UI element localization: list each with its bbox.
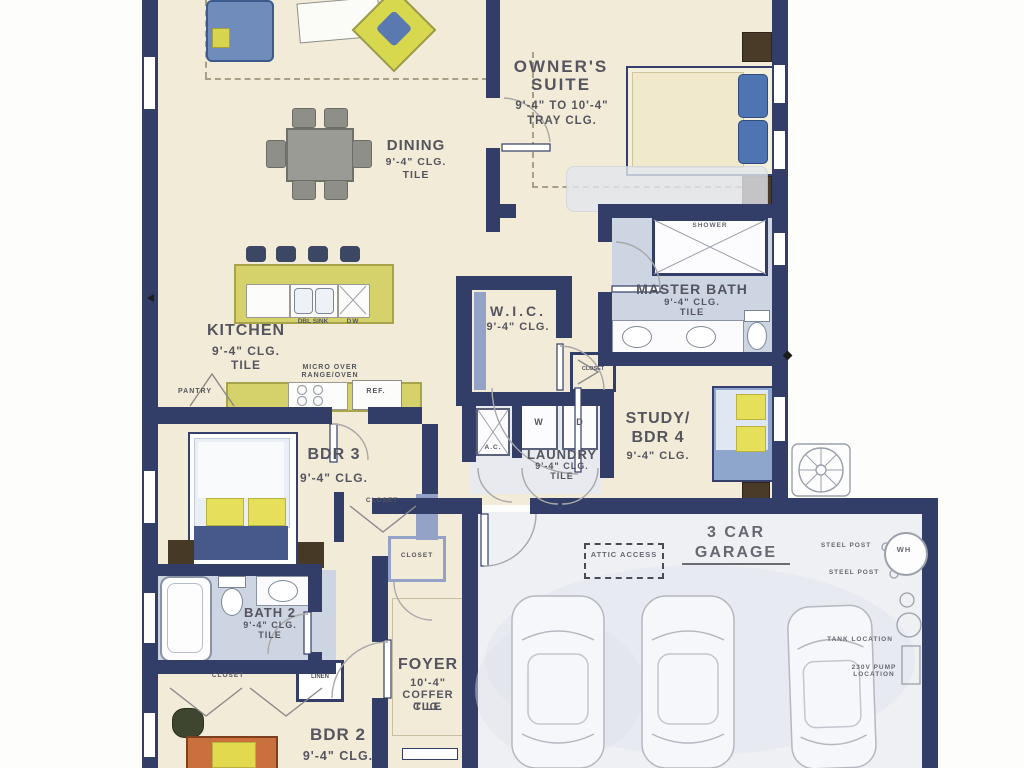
- wall: [922, 498, 938, 768]
- wall: [158, 407, 332, 424]
- wall: [598, 292, 612, 352]
- bdr3-ceiling: 9'-4" CLG.: [290, 472, 378, 485]
- bdr3-bedcover: [194, 526, 288, 560]
- room-label-kitchen: KITCHEN: [196, 322, 296, 339]
- room-label-bath2: BATH 2: [234, 606, 306, 620]
- dining-chair: [266, 140, 286, 168]
- sink-bowl: [315, 288, 334, 314]
- room-label-study2: BDR 4: [618, 429, 698, 446]
- linen-label: LINEN: [298, 674, 342, 680]
- wall: [598, 204, 788, 218]
- owners-bed-blanket: [632, 72, 744, 168]
- wic-ceiling: 9'-4" CLG.: [472, 322, 564, 334]
- wall: [372, 556, 388, 642]
- wall: [598, 218, 612, 242]
- bathtub-inner: [167, 583, 203, 653]
- study-pillow: [736, 394, 766, 420]
- great-room-tray-line: [205, 78, 488, 80]
- wall: [486, 0, 500, 98]
- closet-label: CLOSET: [392, 552, 442, 559]
- room-label-foyer: FOYER: [390, 656, 466, 673]
- dining-table: [286, 128, 354, 182]
- bar-stool: [246, 246, 266, 262]
- wall: [486, 204, 516, 218]
- toilet: [218, 576, 246, 588]
- room-label-garage2: GARAGE: [682, 544, 790, 565]
- room-label-study: STUDY/: [614, 410, 702, 427]
- vanity-sink: [268, 580, 298, 602]
- bdr3-sheet: [198, 442, 284, 498]
- island-counter: [246, 284, 290, 318]
- range-oven: [288, 382, 348, 410]
- dryer-label: D: [562, 418, 598, 428]
- plant: [172, 708, 204, 738]
- owners-pillow: [738, 74, 768, 118]
- laundry-floor: TILE: [522, 472, 602, 482]
- bar-stool: [276, 246, 296, 262]
- room-label-laundry: LAUNDRY: [514, 448, 610, 462]
- study-ceiling: 9'-4" CLG.: [616, 451, 700, 463]
- dining-ceiling: 9'-4" CLG.: [380, 157, 452, 168]
- wall: [462, 406, 476, 462]
- wall: [368, 407, 422, 424]
- owners-pillow: [738, 120, 768, 164]
- dw-label: DW: [338, 318, 368, 325]
- bathtub: [160, 576, 212, 662]
- bar-stool: [340, 246, 360, 262]
- wall: [456, 392, 614, 406]
- closet-label: CLOSET: [572, 367, 614, 373]
- dining-floor: TILE: [380, 170, 452, 181]
- wall: [530, 498, 938, 514]
- owners-ceiling: 9'-4" TO 10'-4": [500, 100, 624, 112]
- dining-chair: [292, 108, 316, 128]
- bdr3-pillow: [248, 498, 286, 526]
- floor-plan: OWNER'S SUITE 9'-4" TO 10'-4" TRAY CLG. …: [0, 0, 1024, 768]
- wall: [486, 148, 500, 232]
- window: [143, 712, 156, 758]
- water-heater-label: WH: [884, 546, 924, 554]
- wall: [142, 0, 158, 768]
- window: [773, 64, 786, 104]
- kitchen-floor: TILE: [200, 359, 292, 372]
- room-label-bdr3: BDR 3: [296, 446, 372, 463]
- ref-label: REF.: [356, 388, 396, 396]
- sink-bowl: [294, 288, 313, 314]
- kitchen-ceiling: 9'-4" CLG.: [200, 345, 292, 358]
- wall: [598, 352, 788, 366]
- study-pillow: [736, 426, 766, 452]
- dining-chair: [324, 108, 348, 128]
- wall: [456, 290, 472, 406]
- sofa-throw: [212, 28, 230, 48]
- toilet-bowl: [747, 322, 767, 350]
- micro-range-label: RANGE/OVEN: [280, 372, 380, 380]
- closet-label: CLOSET: [196, 672, 260, 679]
- wall: [308, 564, 322, 612]
- window: [773, 130, 786, 170]
- vanity-sink: [622, 326, 652, 348]
- dimension-marker: [147, 294, 154, 302]
- micro-range-label: MICRO OVER: [280, 364, 380, 372]
- tank-location-label: TANK LOCATION: [818, 636, 902, 643]
- entry-door: [402, 748, 458, 760]
- window: [773, 396, 786, 442]
- room-label-dining: DINING: [380, 138, 452, 154]
- wall: [422, 424, 438, 502]
- bath2-floor: TILE: [238, 631, 302, 641]
- room-label-bdr2: BDR 2: [300, 726, 376, 744]
- room-label-garage: 3 CAR: [688, 524, 784, 541]
- room-label-wic: W.I.C.: [476, 304, 560, 319]
- bdr2-ceiling: 9'-4" CLG.: [294, 750, 382, 764]
- owners-ceiling-type: TRAY CLG.: [500, 115, 624, 127]
- bdr2-pillow: [212, 742, 256, 768]
- attic-access-label: ATTIC ACCESS: [584, 543, 664, 579]
- wall: [462, 514, 478, 768]
- pump-location-label: 230V PUMP LOCATION: [838, 664, 910, 678]
- wall: [600, 406, 614, 478]
- steel-post-label: STEEL POST: [814, 542, 878, 549]
- dishwasher-box: [338, 284, 370, 318]
- room-label-master-bath: MASTER BATH: [612, 282, 772, 297]
- wall: [334, 492, 344, 542]
- wall: [158, 564, 308, 576]
- window: [143, 470, 156, 524]
- washer-label: W: [520, 418, 558, 428]
- room-label-owners-suite: OWNER'S SUITE: [506, 58, 616, 95]
- accent-chair-pillow: [376, 10, 413, 47]
- side-table: [168, 540, 194, 566]
- wall: [456, 276, 572, 290]
- foyer-floor: TILE: [392, 702, 464, 714]
- bar-stool: [308, 246, 328, 262]
- dining-chair: [292, 180, 316, 200]
- window: [143, 56, 156, 110]
- pantry-label: PANTRY: [168, 388, 222, 396]
- dbl-sink-label: DBL SINK: [294, 318, 332, 325]
- steel-post-label: STEEL POST: [822, 569, 886, 576]
- bdr3-pillow: [206, 498, 244, 526]
- double-sink: [290, 284, 338, 318]
- ac-label: A.C.: [476, 444, 510, 451]
- dining-chair: [352, 140, 372, 168]
- shower-label: SHOWER: [680, 222, 740, 229]
- window: [773, 232, 786, 266]
- window: [143, 592, 156, 644]
- master-bath-floor: TILE: [624, 308, 760, 318]
- nightstand: [742, 32, 772, 62]
- vanity-sink: [686, 326, 716, 348]
- dining-chair: [324, 180, 348, 200]
- closet-label: CLOSET: [348, 497, 416, 504]
